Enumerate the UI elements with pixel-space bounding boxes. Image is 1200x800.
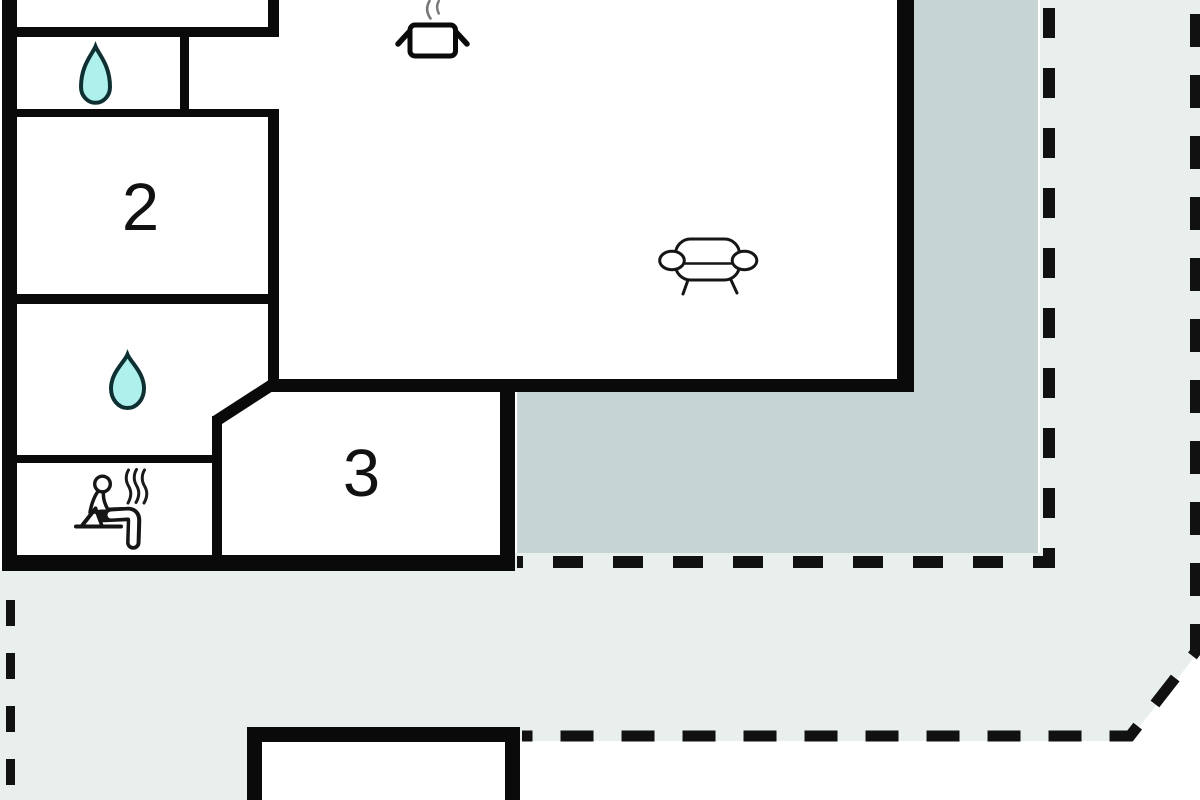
svg-text:2: 2 bbox=[122, 170, 159, 245]
svg-text:3: 3 bbox=[343, 436, 380, 511]
